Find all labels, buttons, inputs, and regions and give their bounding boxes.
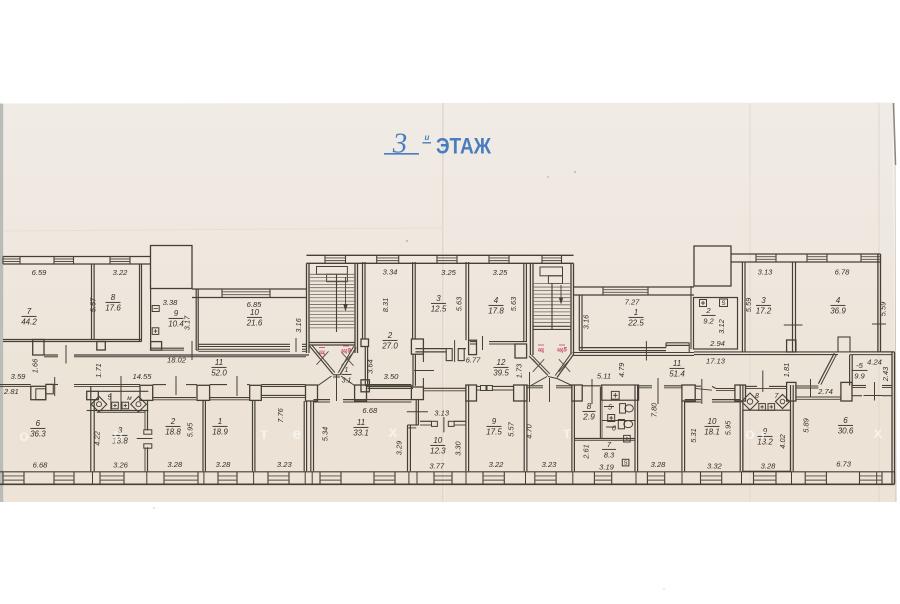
svg-text:5.89: 5.89 (802, 418, 811, 432)
svg-text:2: 2 (387, 331, 393, 340)
svg-text:12: 12 (497, 358, 506, 367)
svg-text:36.3: 36.3 (30, 430, 46, 439)
svg-text:1.71: 1.71 (94, 363, 103, 377)
svg-text:1.73: 1.73 (515, 363, 524, 378)
svg-text:17.5: 17.5 (486, 428, 502, 437)
svg-text:3.25: 3.25 (493, 268, 509, 277)
svg-text:17.8: 17.8 (488, 307, 504, 316)
svg-text:5.95: 5.95 (723, 420, 732, 435)
svg-text:33.1: 33.1 (353, 429, 369, 438)
svg-text:ЭТАЖ: ЭТАЖ (436, 134, 492, 159)
svg-text:2.81: 2.81 (3, 387, 19, 396)
svg-text:3.28: 3.28 (216, 460, 232, 469)
svg-text:S: S (721, 301, 725, 307)
svg-text:1.81: 1.81 (782, 363, 791, 377)
svg-text:44.2: 44.2 (21, 318, 37, 327)
svg-text:2: 2 (705, 306, 711, 315)
svg-text:4: 4 (836, 296, 841, 305)
svg-text:8.31: 8.31 (381, 298, 390, 312)
svg-text:3.22: 3.22 (489, 460, 505, 469)
svg-text:1: 1 (218, 417, 222, 426)
svg-text:3: 3 (392, 128, 408, 160)
svg-text:6: 6 (843, 416, 848, 425)
svg-text:2.61: 2.61 (582, 444, 591, 459)
svg-text:10: 10 (250, 308, 259, 317)
svg-text:12.5: 12.5 (431, 305, 447, 314)
svg-text:и: и (425, 133, 430, 142)
svg-text:21.6: 21.6 (246, 319, 263, 328)
svg-text:5.57: 5.57 (507, 421, 516, 436)
svg-text:6.77: 6.77 (466, 356, 482, 365)
svg-text:щ: щ (319, 349, 325, 356)
svg-text:8.3: 8.3 (604, 451, 615, 460)
svg-text:3.16: 3.16 (582, 314, 591, 329)
svg-text:3.17: 3.17 (183, 315, 192, 330)
svg-text:щ9: щ9 (341, 348, 351, 355)
svg-text:1: 1 (634, 308, 638, 317)
svg-text:9.9: 9.9 (854, 372, 865, 381)
svg-text:1: 1 (345, 367, 349, 374)
svg-text:3.28: 3.28 (167, 460, 183, 469)
svg-text:3.13: 3.13 (758, 268, 774, 277)
svg-text:17.13: 17.13 (706, 357, 726, 366)
svg-text:3.30: 3.30 (454, 441, 463, 456)
svg-text:3.34: 3.34 (383, 268, 398, 277)
svg-text:36.9: 36.9 (830, 307, 846, 316)
svg-text:е: е (293, 426, 302, 443)
svg-text:11: 11 (357, 418, 365, 427)
svg-text:4.22: 4.22 (93, 431, 102, 445)
svg-text:5.57: 5.57 (89, 297, 98, 312)
svg-text:8: 8 (111, 293, 116, 302)
svg-text:9: 9 (492, 417, 497, 426)
svg-text:6.68: 6.68 (362, 406, 378, 415)
svg-text:39.5: 39.5 (493, 369, 509, 378)
svg-text:7: 7 (27, 307, 32, 316)
svg-text:5.31: 5.31 (689, 428, 698, 442)
svg-text:52.0: 52.0 (211, 369, 227, 378)
svg-text:о: о (19, 428, 29, 445)
svg-text:6.73: 6.73 (836, 460, 852, 469)
svg-text:2: 2 (170, 417, 176, 426)
svg-text:3.28: 3.28 (761, 462, 777, 471)
svg-text:3.26: 3.26 (113, 461, 129, 470)
svg-text:18.8: 18.8 (165, 428, 181, 437)
svg-text:14.55: 14.55 (132, 372, 152, 381)
svg-text:3.29: 3.29 (394, 441, 403, 455)
svg-text:11: 11 (215, 358, 223, 367)
svg-text:3.50: 3.50 (384, 372, 400, 381)
svg-text:х: х (874, 425, 883, 442)
svg-text:18.1: 18.1 (704, 428, 720, 437)
svg-text:6.59: 6.59 (32, 268, 48, 277)
svg-text:3.28: 3.28 (651, 460, 667, 469)
svg-text:7.80: 7.80 (650, 402, 659, 417)
svg-text:о: о (745, 426, 755, 443)
svg-text:S: S (624, 461, 628, 467)
svg-text:т: т (563, 425, 571, 442)
svg-text:5.11: 5.11 (597, 372, 611, 381)
svg-text:3: 3 (761, 296, 766, 305)
svg-text:3.64: 3.64 (365, 359, 374, 373)
svg-text:3.77: 3.77 (429, 462, 445, 471)
svg-text:7.76: 7.76 (276, 407, 285, 422)
svg-text:8: 8 (755, 393, 759, 400)
svg-text:т: т (260, 426, 268, 443)
svg-text:р: р (113, 427, 123, 444)
svg-text:11: 11 (673, 359, 681, 368)
svg-text:3.19: 3.19 (599, 463, 615, 472)
svg-text:2.94: 2.94 (709, 339, 725, 348)
svg-text:12.3: 12.3 (430, 447, 446, 456)
svg-text:6.78: 6.78 (835, 268, 851, 277)
svg-text:18.02: 18.02 (167, 356, 187, 365)
svg-text:27.0: 27.0 (381, 342, 398, 351)
svg-text:щ5: щ5 (557, 347, 567, 354)
svg-text:4.79: 4.79 (617, 363, 626, 377)
svg-text:4.70: 4.70 (525, 423, 534, 438)
svg-text:3.12: 3.12 (717, 319, 726, 333)
svg-text:5.34: 5.34 (320, 427, 329, 441)
svg-text:м: м (127, 395, 132, 402)
svg-text:5.63: 5.63 (509, 296, 518, 311)
svg-text:3.13: 3.13 (434, 408, 450, 417)
svg-text:30.6: 30.6 (838, 427, 854, 436)
svg-text:щ: щ (538, 347, 544, 354)
svg-text:5.95: 5.95 (186, 422, 195, 437)
svg-text:3.38: 3.38 (163, 298, 179, 307)
svg-text:3.22: 3.22 (113, 268, 129, 277)
svg-text:6.68: 6.68 (33, 461, 49, 470)
svg-text:4: 4 (494, 296, 499, 305)
svg-text:3: 3 (436, 294, 441, 303)
svg-text:10: 10 (433, 436, 442, 445)
svg-text:2.9: 2.9 (582, 412, 595, 422)
svg-text:4.24: 4.24 (867, 358, 882, 367)
svg-text:3.16: 3.16 (294, 317, 303, 332)
svg-text:5.59: 5.59 (744, 298, 753, 312)
svg-text:9.2: 9.2 (703, 317, 714, 326)
svg-text:3.1: 3.1 (342, 378, 352, 385)
svg-text:6: 6 (36, 419, 41, 428)
svg-text:3.59: 3.59 (11, 372, 27, 381)
svg-text:17.2: 17.2 (756, 307, 772, 316)
svg-text:3.32: 3.32 (707, 462, 723, 471)
svg-text:г: г (761, 427, 768, 444)
svg-text:18.9: 18.9 (212, 428, 228, 437)
svg-text:3.25: 3.25 (441, 268, 457, 277)
svg-text:4.02: 4.02 (778, 434, 787, 448)
svg-text:17.6: 17.6 (105, 304, 121, 313)
svg-text:5.63: 5.63 (455, 296, 464, 311)
svg-text:8: 8 (587, 401, 592, 411)
svg-text:3.23: 3.23 (542, 460, 558, 469)
svg-text:2.74: 2.74 (817, 387, 833, 396)
svg-text:51.4: 51.4 (669, 370, 685, 379)
svg-text:22.5: 22.5 (627, 319, 644, 328)
svg-text:х: х (389, 424, 398, 441)
svg-text:9: 9 (174, 309, 179, 318)
svg-text:-5: -5 (856, 361, 864, 370)
svg-text:2.43: 2.43 (881, 366, 890, 382)
svg-text:7.27: 7.27 (625, 298, 641, 307)
svg-text:10: 10 (708, 417, 717, 426)
svg-text:3.23: 3.23 (277, 460, 293, 469)
svg-text:1.66: 1.66 (31, 358, 40, 373)
